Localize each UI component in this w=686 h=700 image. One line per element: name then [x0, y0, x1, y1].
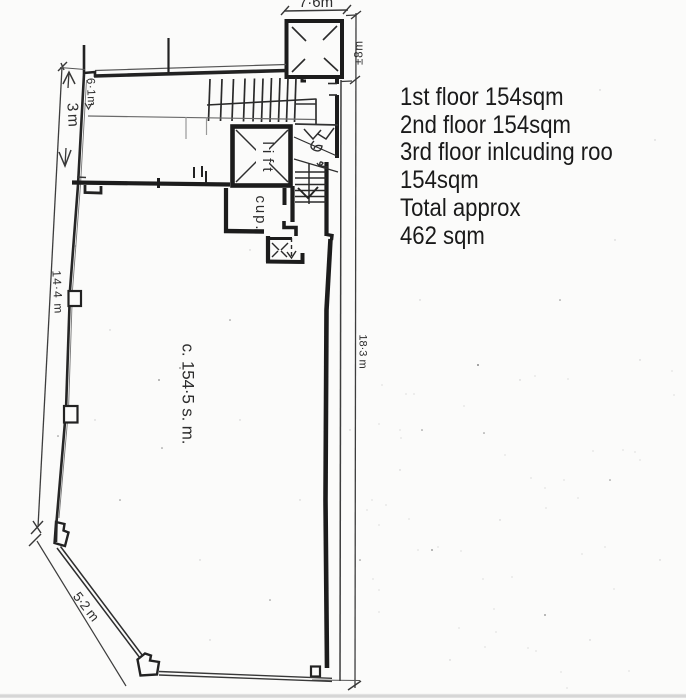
svg-text:6·1m: 6·1m [84, 78, 97, 106]
svg-text:c. 154·5 s. m.: c. 154·5 s. m. [179, 344, 198, 445]
svg-text:±8m: ±8m [354, 41, 366, 65]
svg-text:cup.: cup. [252, 196, 269, 230]
svg-text:3m: 3m [63, 102, 81, 127]
svg-text:14·4 m: 14·4 m [49, 270, 65, 314]
svg-text:7·6m: 7·6m [299, 0, 333, 11]
svg-text:18·3 m: 18·3 m [357, 334, 369, 368]
